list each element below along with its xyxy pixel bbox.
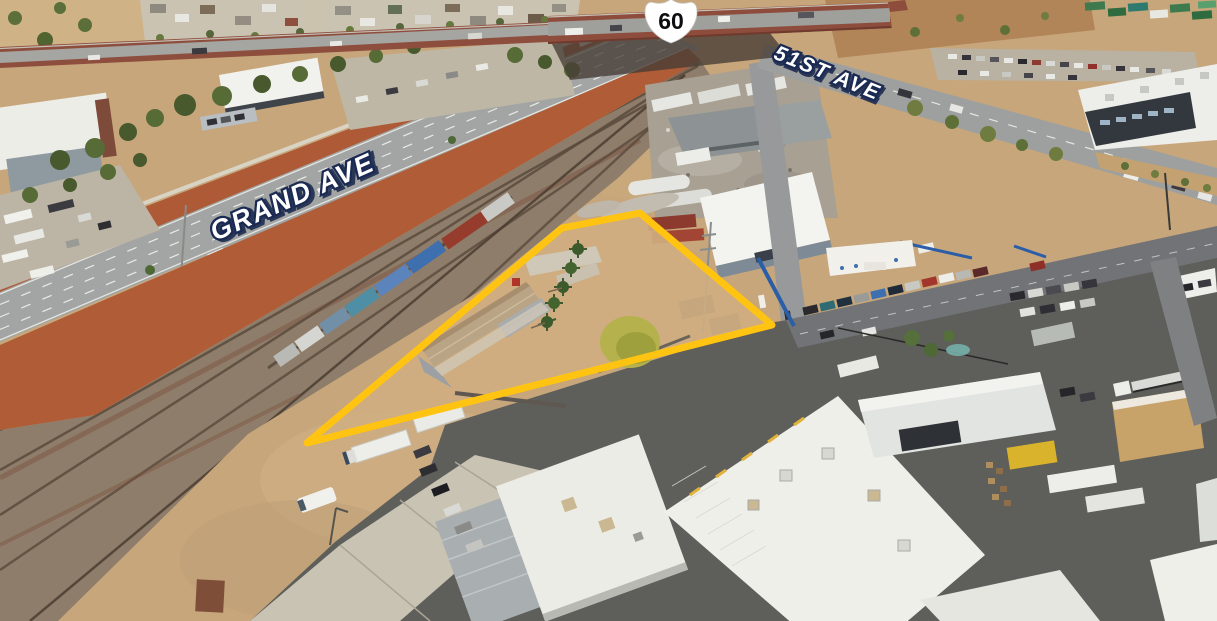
dumpster xyxy=(195,579,225,612)
aerial-photo: 60 GRAND AVE GRAND AVE 51ST AVE 51ST AVE xyxy=(0,0,1217,621)
aerial-photo-stage: 60 GRAND AVE GRAND AVE 51ST AVE 51ST AVE xyxy=(0,0,1217,621)
red-equipment xyxy=(512,278,520,286)
route-shield-number: 60 xyxy=(658,8,684,34)
